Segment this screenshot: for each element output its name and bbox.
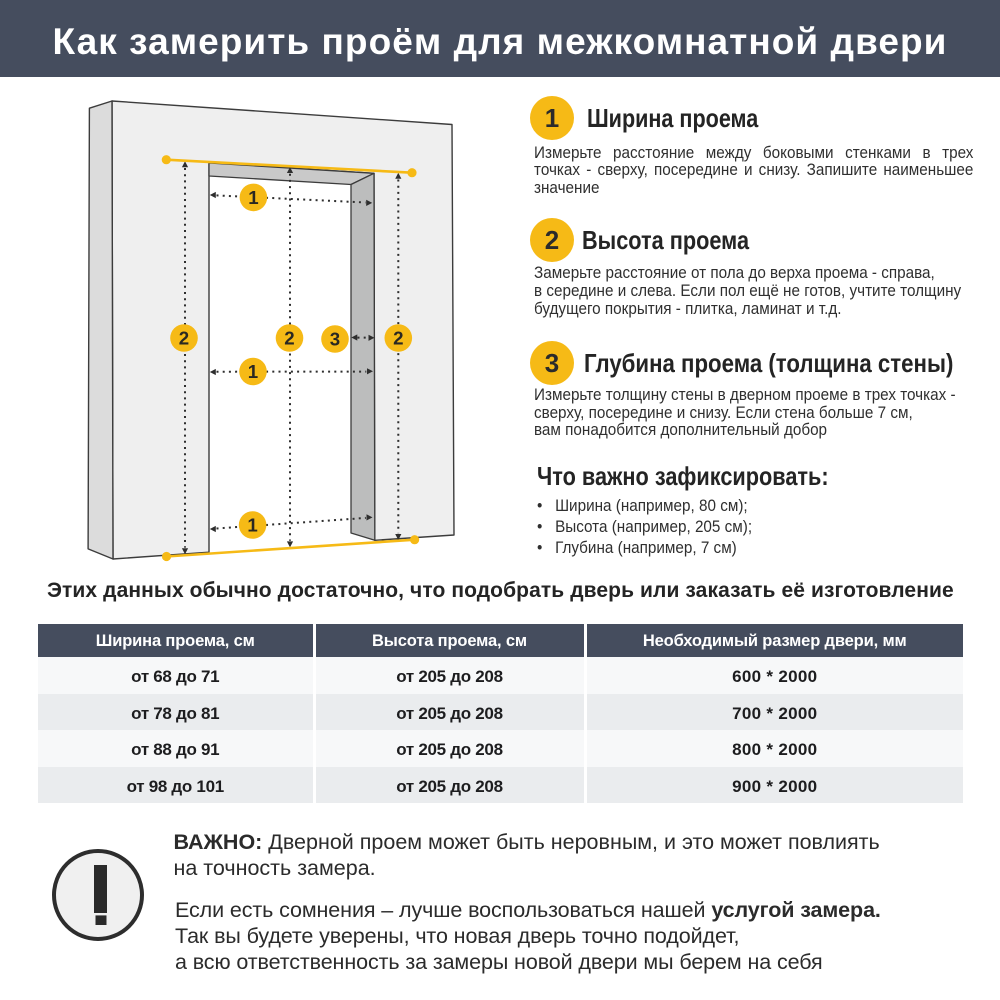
- svg-text:1: 1: [247, 515, 257, 536]
- svg-text:2: 2: [393, 328, 403, 349]
- svg-text:2: 2: [284, 328, 294, 349]
- svg-text:2: 2: [179, 328, 189, 349]
- svg-text:1: 1: [248, 361, 258, 382]
- svg-text:3: 3: [330, 329, 340, 350]
- svg-text:1: 1: [248, 187, 258, 208]
